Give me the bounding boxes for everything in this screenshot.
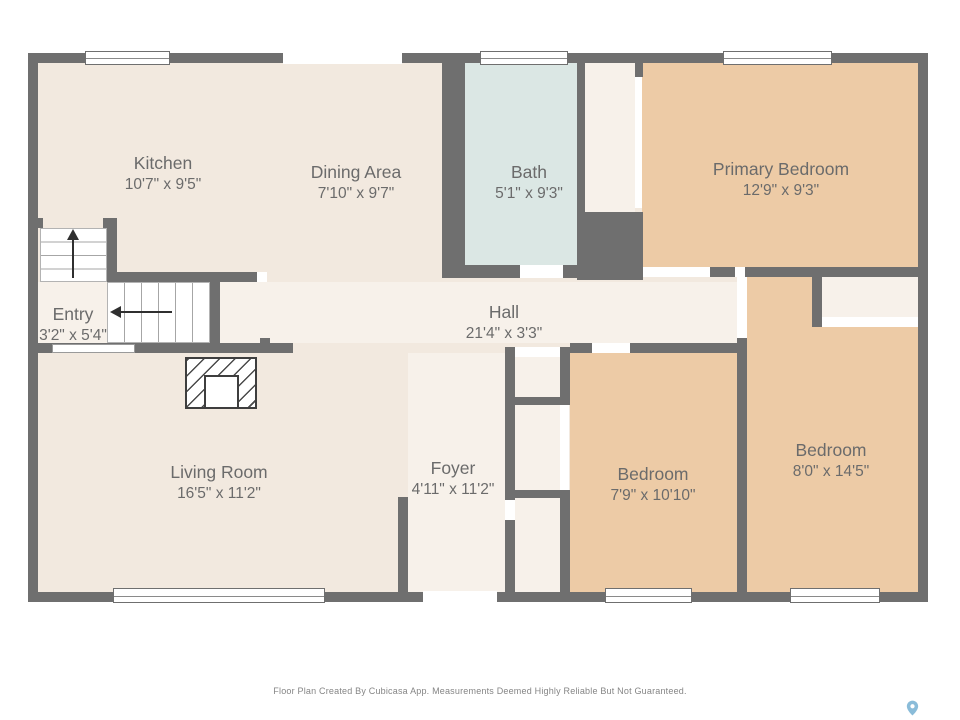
window-bedroom-small xyxy=(605,588,692,603)
room-dims: 12'9" x 9'3" xyxy=(713,180,849,201)
room-name: Bedroom xyxy=(610,463,695,485)
stairs-up-arrow-head xyxy=(67,229,79,240)
door-bedroom-small xyxy=(592,343,630,353)
floor-closet-bath xyxy=(585,63,635,212)
floor-closet-foyer xyxy=(515,498,560,592)
fireplace-firebox xyxy=(204,375,239,409)
wall-exterior-right xyxy=(918,53,928,602)
door-stairs-mid xyxy=(257,272,267,282)
room-dims: 7'10" x 9'7" xyxy=(311,183,401,204)
wall-bath-right xyxy=(577,63,585,212)
door-bedroom-large xyxy=(737,277,747,338)
room-label-living-room: Living Room 16'5" x 11'2" xyxy=(170,461,267,504)
wall-bath-left xyxy=(442,63,465,265)
wall-closets-divider-2 xyxy=(505,490,570,498)
room-name: Living Room xyxy=(170,461,267,483)
room-label-dining-area: Dining Area 7'10" x 9'7" xyxy=(311,161,401,204)
window-bedroom-large xyxy=(790,588,880,603)
room-label-primary-bedroom: Primary Bedroom 12'9" x 9'3" xyxy=(713,158,849,201)
disclaimer-text: Floor Plan Created By Cubicasa App. Meas… xyxy=(0,686,960,696)
room-name: Primary Bedroom xyxy=(713,158,849,180)
floor-closet-hall xyxy=(515,353,560,397)
cubicasa-pin-icon xyxy=(904,698,921,718)
room-label-kitchen: Kitchen 10'7" x 9'5" xyxy=(125,152,201,195)
wall-closets-left-b xyxy=(505,520,515,592)
room-name: Kitchen xyxy=(125,152,201,174)
room-dims: 7'9" x 10'10" xyxy=(610,485,695,506)
door-bath xyxy=(520,265,563,278)
wall-bedroom-divider xyxy=(737,338,747,592)
wall-closet-large-left xyxy=(812,275,822,327)
floor-closet-bedroom-small xyxy=(515,405,560,490)
wall-closets-divider-1 xyxy=(505,397,567,405)
room-name: Bath xyxy=(495,161,563,183)
room-dims: 8'0" x 14'5" xyxy=(793,461,869,482)
room-label-hall: Hall 21'4" x 3'3" xyxy=(466,301,542,344)
room-dims: 5'1" x 9'3" xyxy=(495,183,563,204)
floor-closet-bedroom-large xyxy=(822,275,918,317)
wall-closets-left-a xyxy=(505,347,515,500)
room-dims: 10'7" x 9'5" xyxy=(125,174,201,195)
room-dims: 16'5" x 11'2" xyxy=(170,483,267,504)
room-label-entry: Entry 3'2" x 5'4" xyxy=(39,303,107,346)
door-primary-bedroom xyxy=(643,267,710,277)
stairs-down-arrow-head xyxy=(110,306,121,318)
stairs-down-arrow-line xyxy=(120,311,172,313)
room-dims: 21'4" x 3'3" xyxy=(466,323,542,344)
window-living-room xyxy=(113,588,325,603)
door-patio-dining xyxy=(283,52,402,64)
wall-closets-right-b xyxy=(560,490,570,592)
window-primary-bedroom xyxy=(723,51,832,65)
room-name: Foyer xyxy=(412,457,495,479)
room-dims: 4'11" x 11'2" xyxy=(412,479,495,500)
room-name: Dining Area xyxy=(311,161,401,183)
floor-plan-canvas: Kitchen 10'7" x 9'5" Dining Area 7'10" x… xyxy=(0,0,960,720)
room-name: Entry xyxy=(39,303,107,325)
window-bath xyxy=(480,51,568,65)
room-label-foyer: Foyer 4'11" x 11'2" xyxy=(412,457,495,500)
door-closet-bedroom-small xyxy=(560,405,569,490)
window-kitchen xyxy=(85,51,170,65)
room-dims: 3'2" x 5'4" xyxy=(39,325,107,346)
room-label-bedroom-small: Bedroom 7'9" x 10'10" xyxy=(610,463,695,506)
door-closet-foyer xyxy=(505,500,515,520)
room-label-bedroom-large: Bedroom 8'0" x 14'5" xyxy=(793,439,869,482)
wall-exterior-left xyxy=(28,53,38,602)
wall-stairs-mid xyxy=(107,272,267,282)
stairs-up-arrow-line xyxy=(72,238,74,278)
wall-closet-bath-stub xyxy=(635,63,643,77)
door-closet-bedroom-large xyxy=(822,317,918,327)
wall-block-below-closet xyxy=(577,212,643,280)
wall-foyer-west xyxy=(398,497,408,592)
door-closet-hall xyxy=(515,347,560,357)
room-name: Hall xyxy=(466,301,542,323)
wall-stairs-lower-right xyxy=(210,282,220,343)
door-notch-primary-wall xyxy=(735,267,745,277)
wall-hall-south-stub xyxy=(260,338,270,343)
door-closet-bath xyxy=(635,77,642,208)
door-foyer-exit xyxy=(423,591,497,603)
wall-kitchen-a xyxy=(28,218,43,228)
room-label-bath: Bath 5'1" x 9'3" xyxy=(495,161,563,204)
room-name: Bedroom xyxy=(793,439,869,461)
